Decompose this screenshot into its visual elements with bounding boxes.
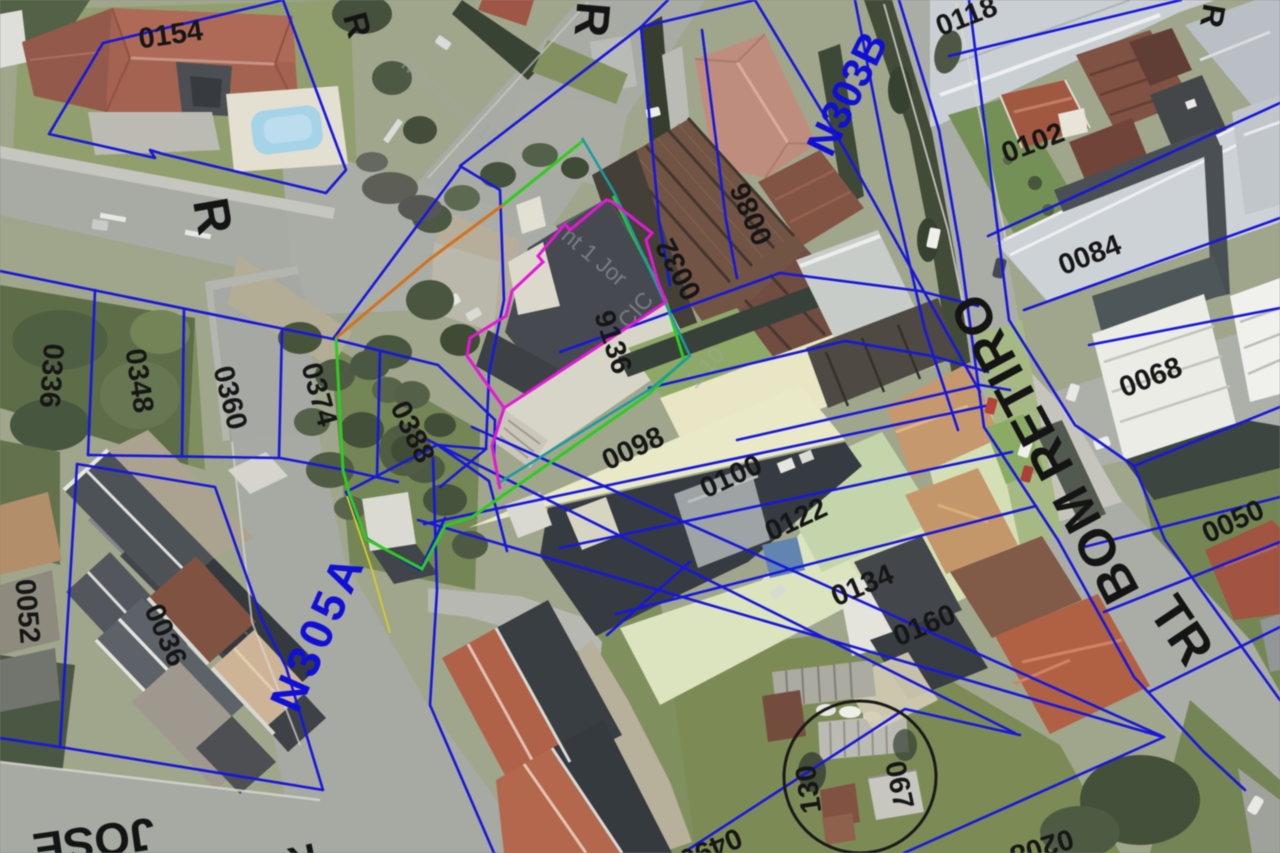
svg-text:0052: 0052 (8, 578, 46, 645)
svg-text:R: R (564, 0, 620, 39)
svg-text:0336: 0336 (33, 342, 69, 409)
svg-text:130: 130 (790, 763, 828, 815)
